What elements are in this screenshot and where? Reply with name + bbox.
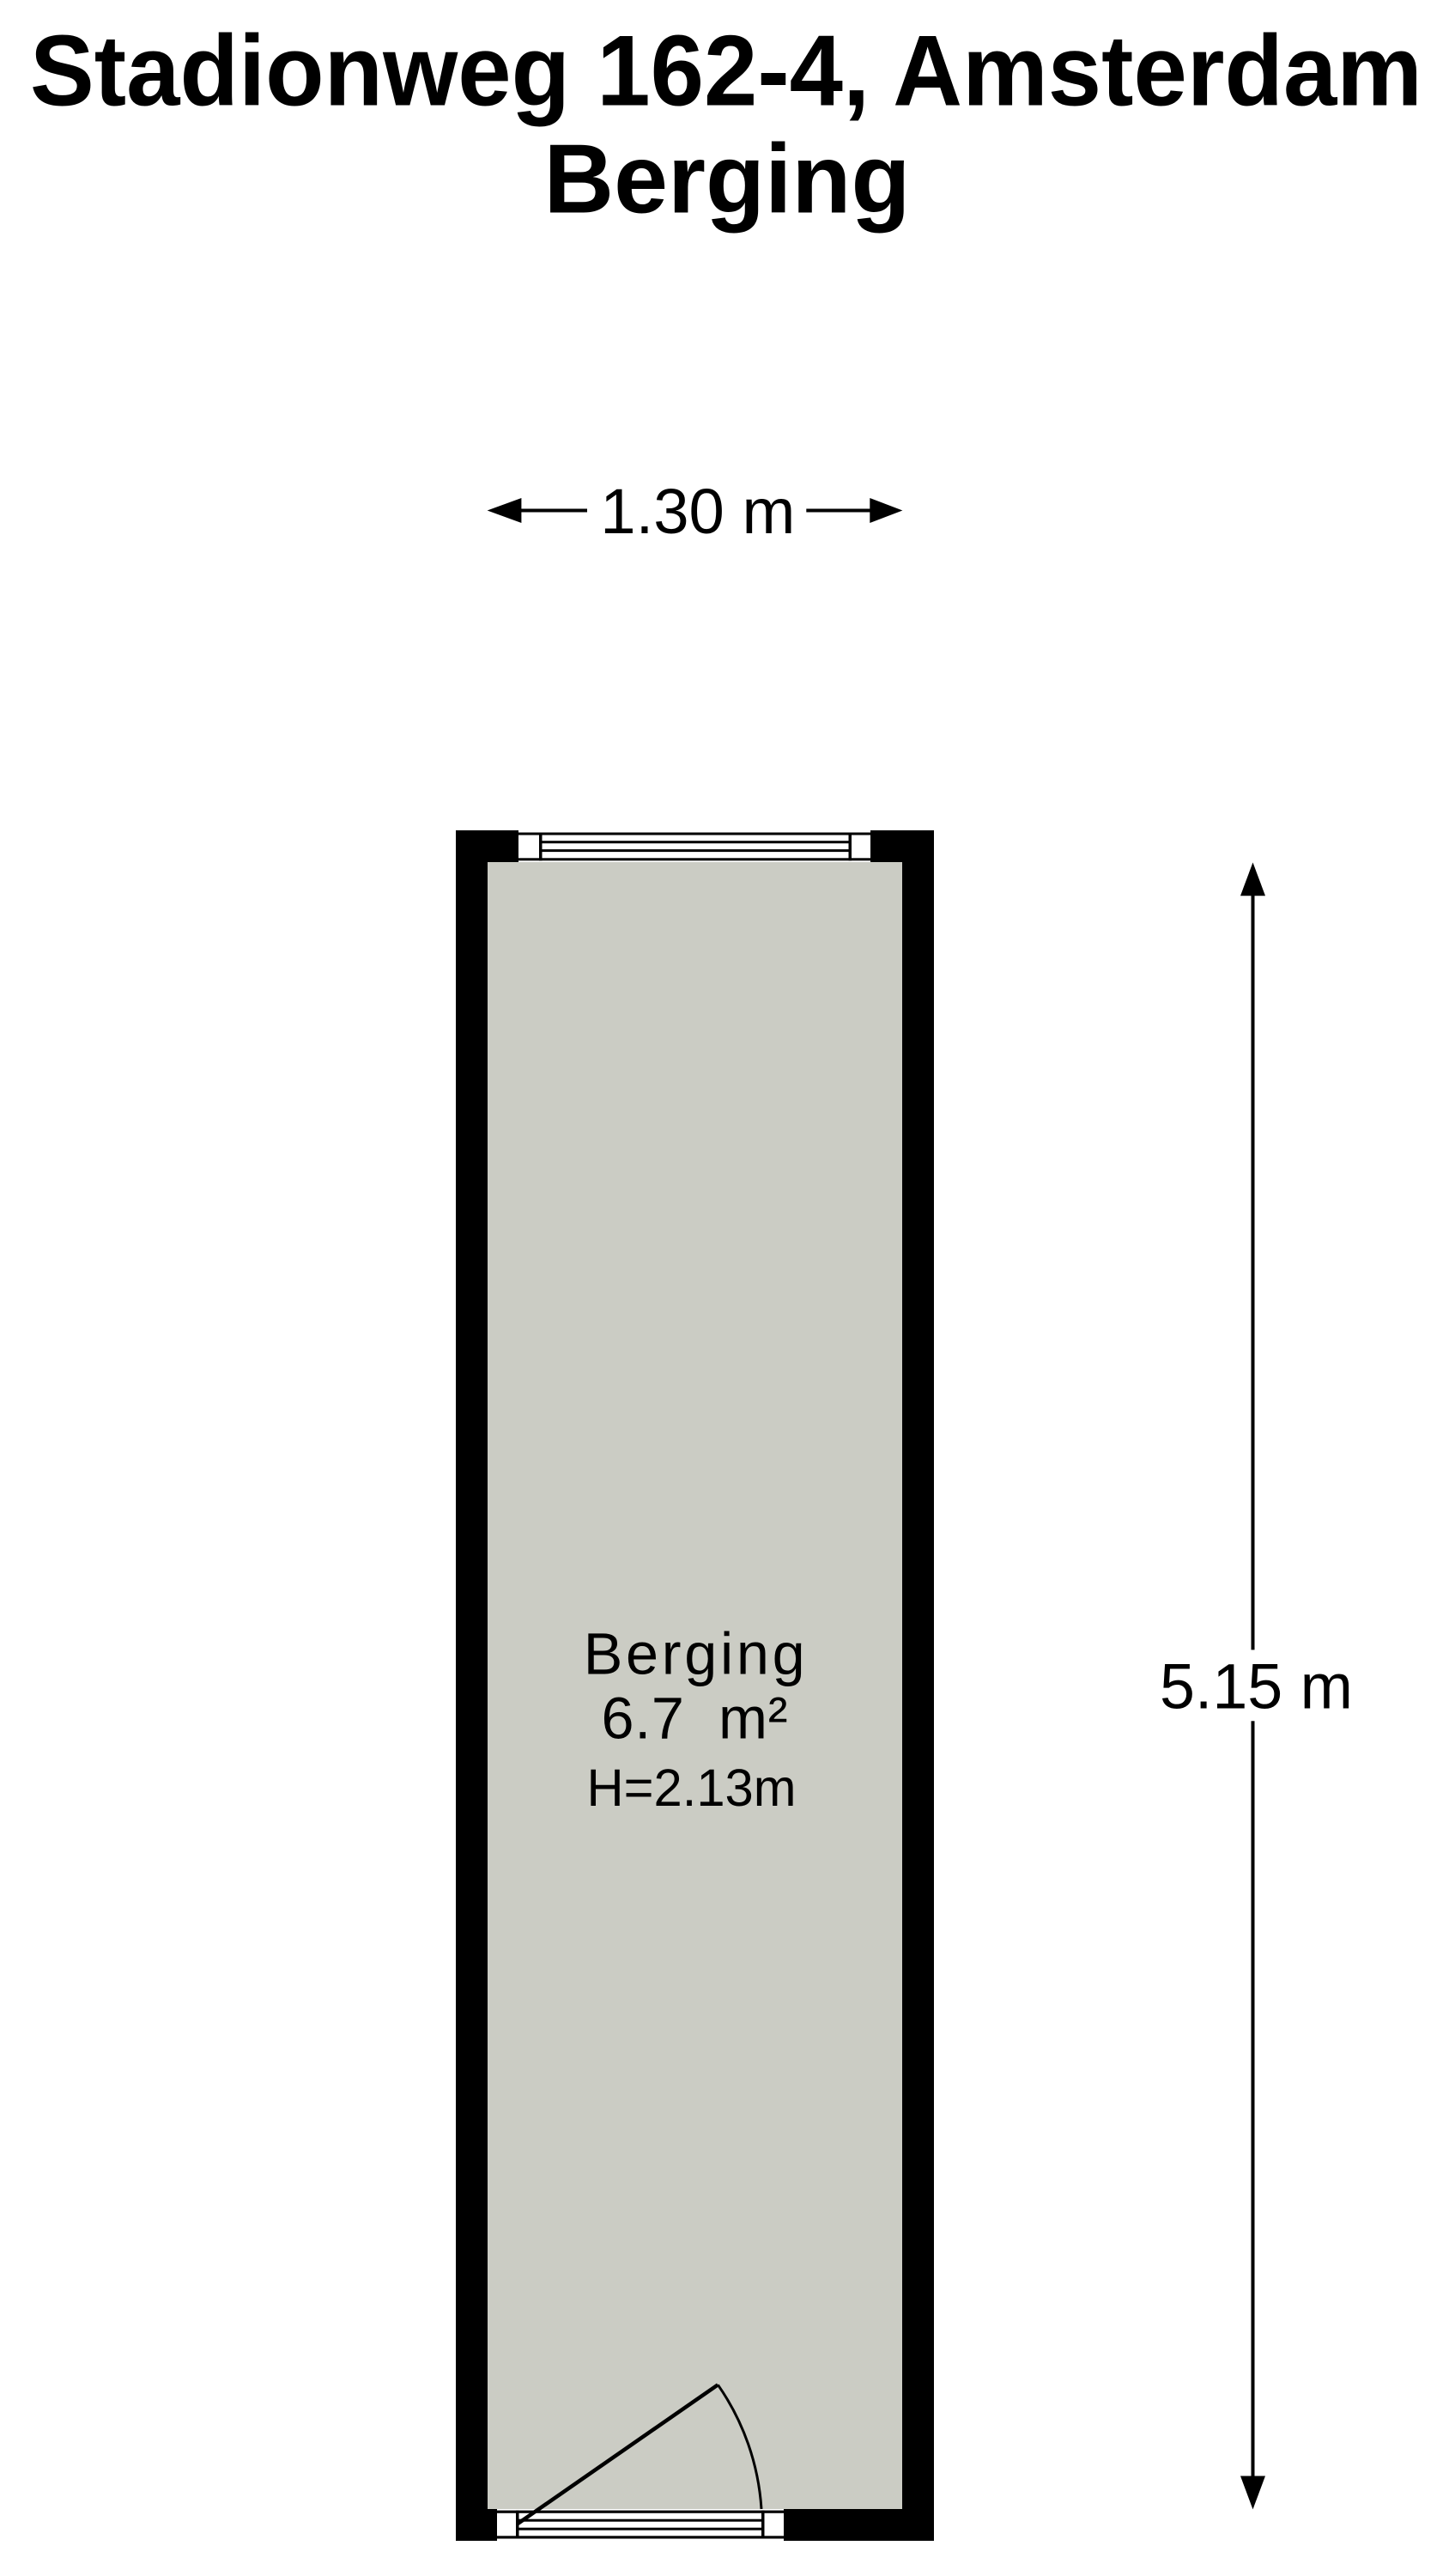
svg-text:1.30 m: 1.30 m (600, 476, 795, 547)
svg-text:5.15 m: 5.15 m (1160, 1650, 1353, 1722)
svg-text:Berging: Berging (584, 1622, 805, 1687)
svg-text:6.7 m²: 6.7 m² (602, 1686, 788, 1752)
svg-text:Berging: Berging (544, 124, 911, 234)
svg-text:Stadionweg 162-4, Amsterdam: Stadionweg 162-4, Amsterdam (30, 15, 1422, 127)
svg-text:H=2.13m: H=2.13m (587, 1759, 797, 1817)
